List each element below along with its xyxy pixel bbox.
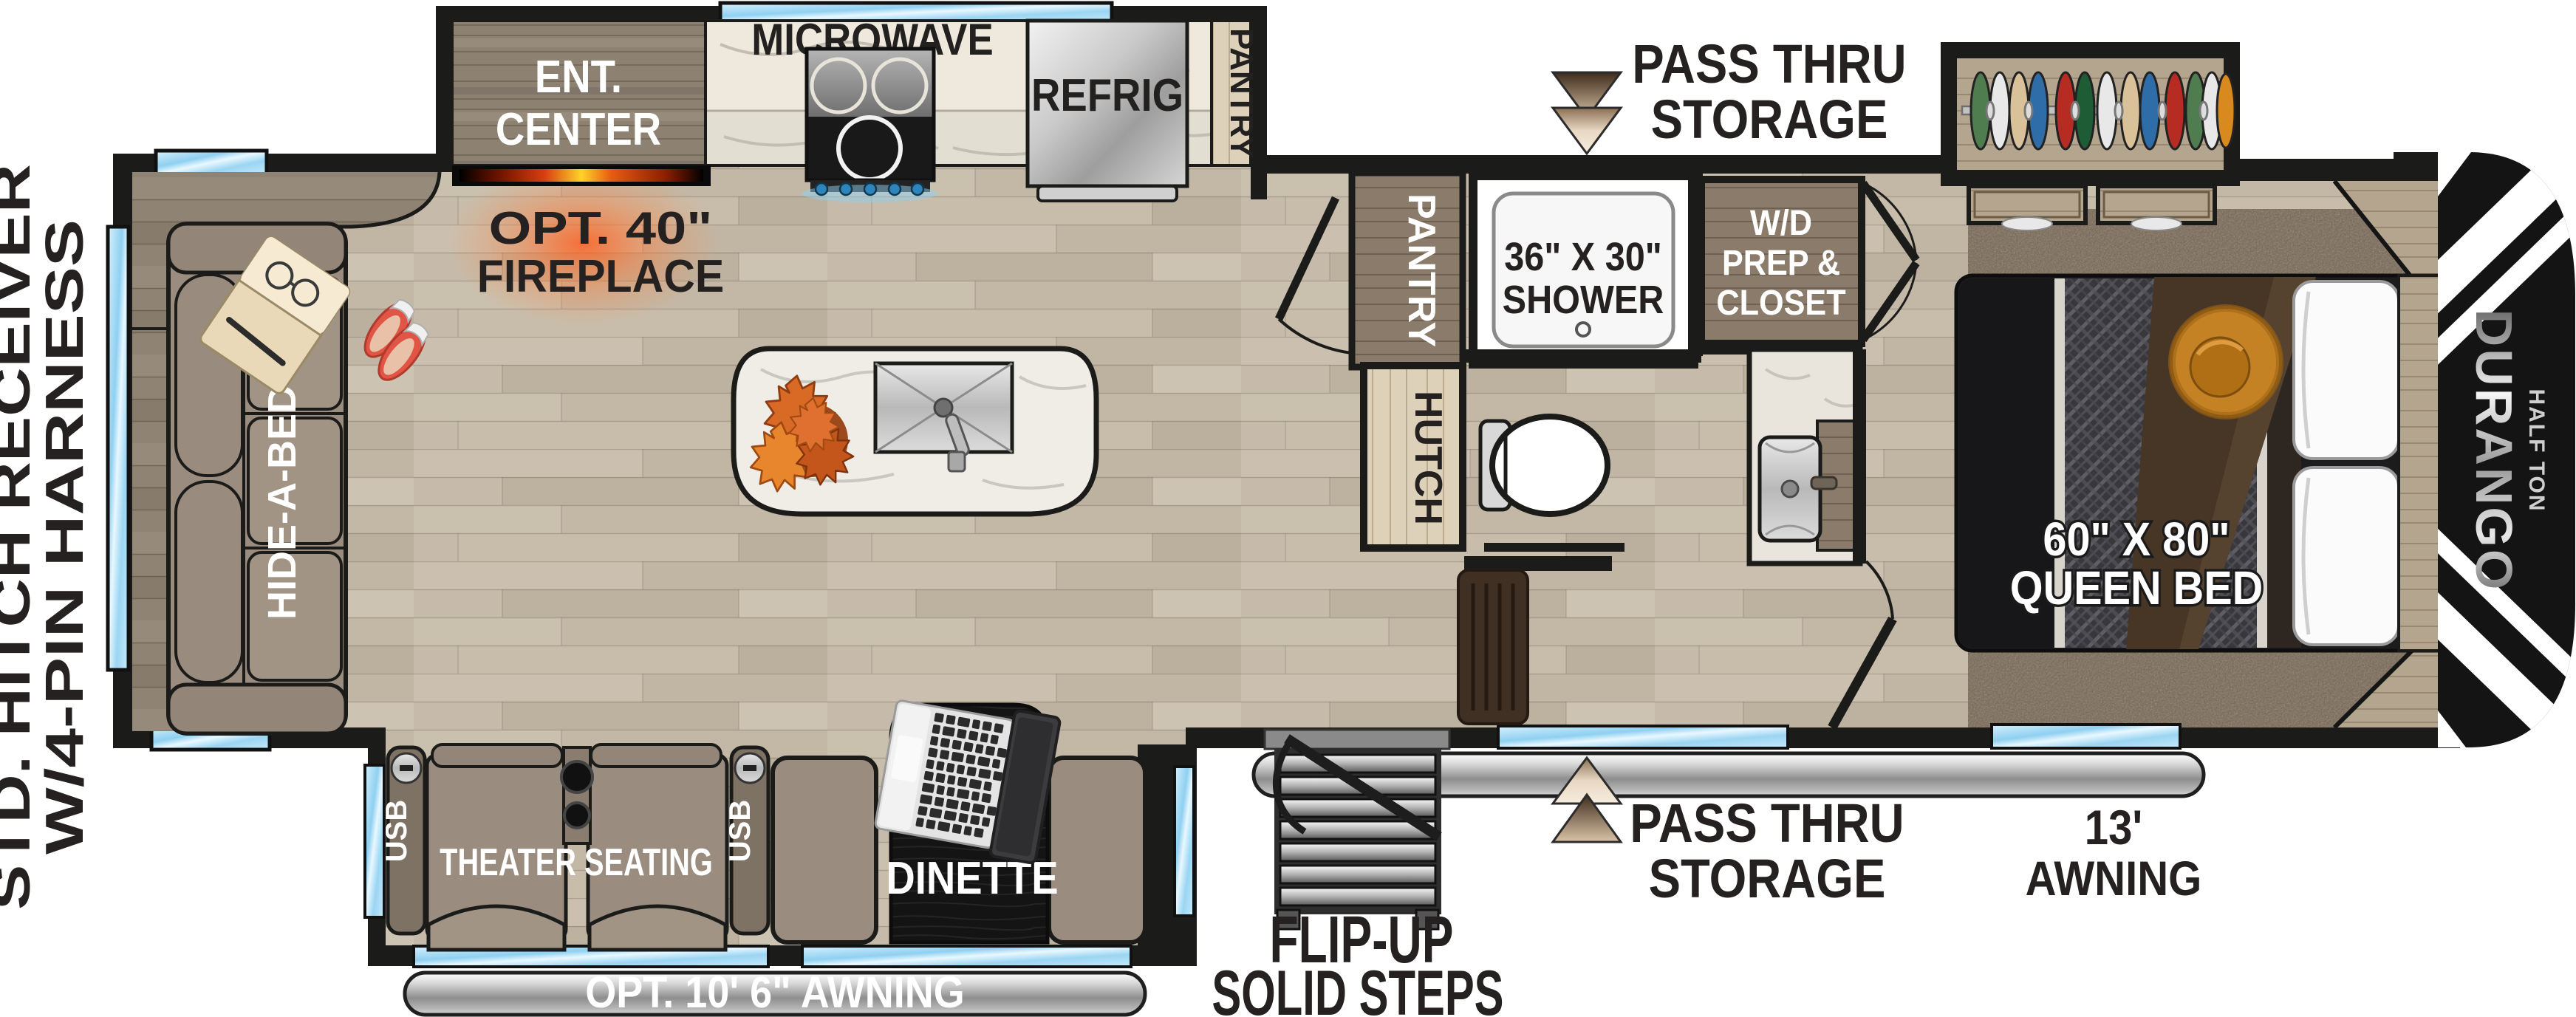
svg-text:REFRIG: REFRIG — [1031, 70, 1183, 121]
svg-text:13': 13' — [2085, 801, 2142, 855]
svg-text:W/D: W/D — [1750, 203, 1812, 243]
svg-text:36" X 30": 36" X 30" — [1504, 234, 1662, 279]
svg-text:HUTCH: HUTCH — [1407, 391, 1449, 525]
svg-text:HIDE-A-BED: HIDE-A-BED — [260, 385, 304, 620]
svg-text:W/4-PIN HARNESS: W/4-PIN HARNESS — [35, 219, 95, 855]
svg-text:USB: USB — [724, 800, 756, 862]
svg-text:60" X 80": 60" X 80" — [2043, 513, 2230, 565]
svg-text:PANTRY: PANTRY — [1223, 28, 1260, 158]
svg-text:SOLID STEPS: SOLID STEPS — [1212, 959, 1503, 1017]
svg-text:OPT. 40": OPT. 40" — [489, 203, 713, 254]
svg-text:PASS THRU: PASS THRU — [1630, 792, 1904, 854]
svg-text:AWNING: AWNING — [2026, 852, 2202, 906]
svg-text:THEATER SEATING: THEATER SEATING — [440, 841, 713, 883]
svg-text:OPT. 10' 6" AWNING: OPT. 10' 6" AWNING — [585, 968, 964, 1017]
svg-text:QUEEN BED: QUEEN BED — [2010, 561, 2263, 614]
svg-text:PANTRY: PANTRY — [1400, 194, 1443, 347]
svg-text:DURANGO: DURANGO — [2465, 309, 2523, 592]
svg-text:STORAGE: STORAGE — [1651, 89, 1888, 150]
svg-text:USB: USB — [380, 800, 413, 862]
svg-text:SHOWER: SHOWER — [1503, 277, 1664, 322]
svg-text:HALF TON: HALF TON — [2524, 388, 2549, 512]
svg-text:FIREPLACE: FIREPLACE — [477, 251, 724, 302]
svg-text:STORAGE: STORAGE — [1649, 848, 1886, 909]
svg-text:ENT.: ENT. — [535, 52, 622, 103]
svg-text:PREP &: PREP & — [1722, 243, 1840, 283]
svg-text:PASS THRU: PASS THRU — [1632, 33, 1906, 95]
svg-text:CENTER: CENTER — [496, 104, 661, 155]
svg-text:CLOSET: CLOSET — [1716, 283, 1845, 323]
